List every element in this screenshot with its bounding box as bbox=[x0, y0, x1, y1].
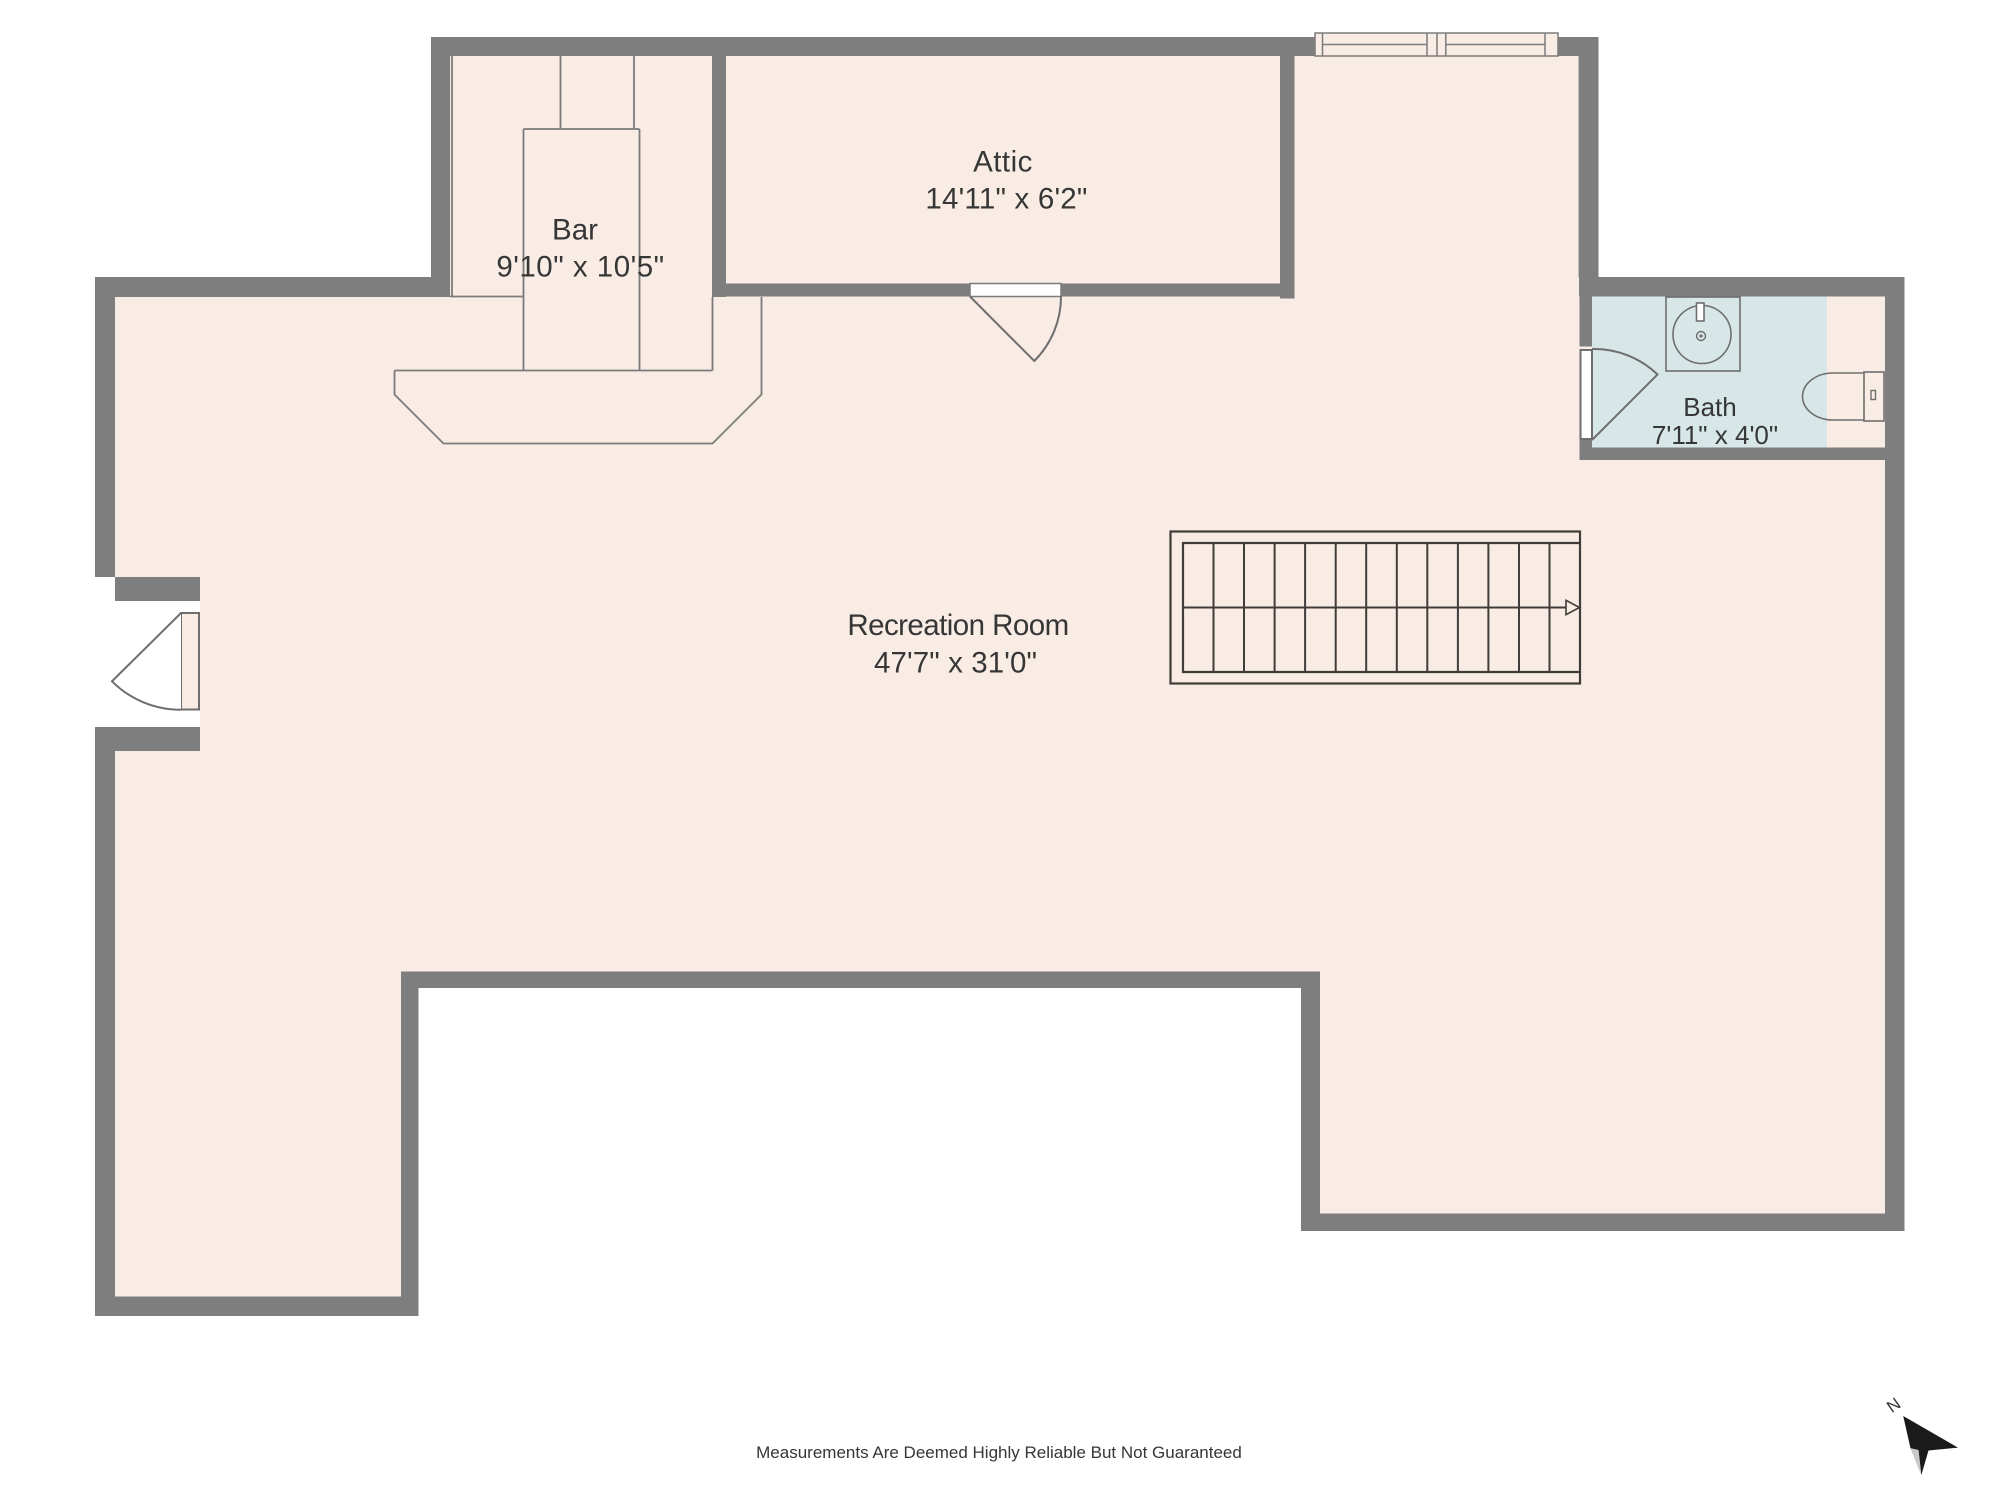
svg-text:14'11" x 6'2": 14'11" x 6'2" bbox=[925, 183, 1087, 216]
svg-text:Measurements Are Deemed Highly: Measurements Are Deemed Highly Reliable … bbox=[756, 1443, 1242, 1462]
svg-text:47'7" x 31'0": 47'7" x 31'0" bbox=[874, 646, 1037, 679]
svg-text:Recreation Room: Recreation Room bbox=[847, 609, 1068, 642]
svg-text:9'10" x 10'5": 9'10" x 10'5" bbox=[496, 251, 664, 284]
svg-text:7'11" x 4'0": 7'11" x 4'0" bbox=[1652, 420, 1778, 450]
svg-text:Attic: Attic bbox=[973, 146, 1033, 179]
svg-text:Bath: Bath bbox=[1683, 392, 1737, 422]
svg-text:Bar: Bar bbox=[552, 214, 598, 247]
